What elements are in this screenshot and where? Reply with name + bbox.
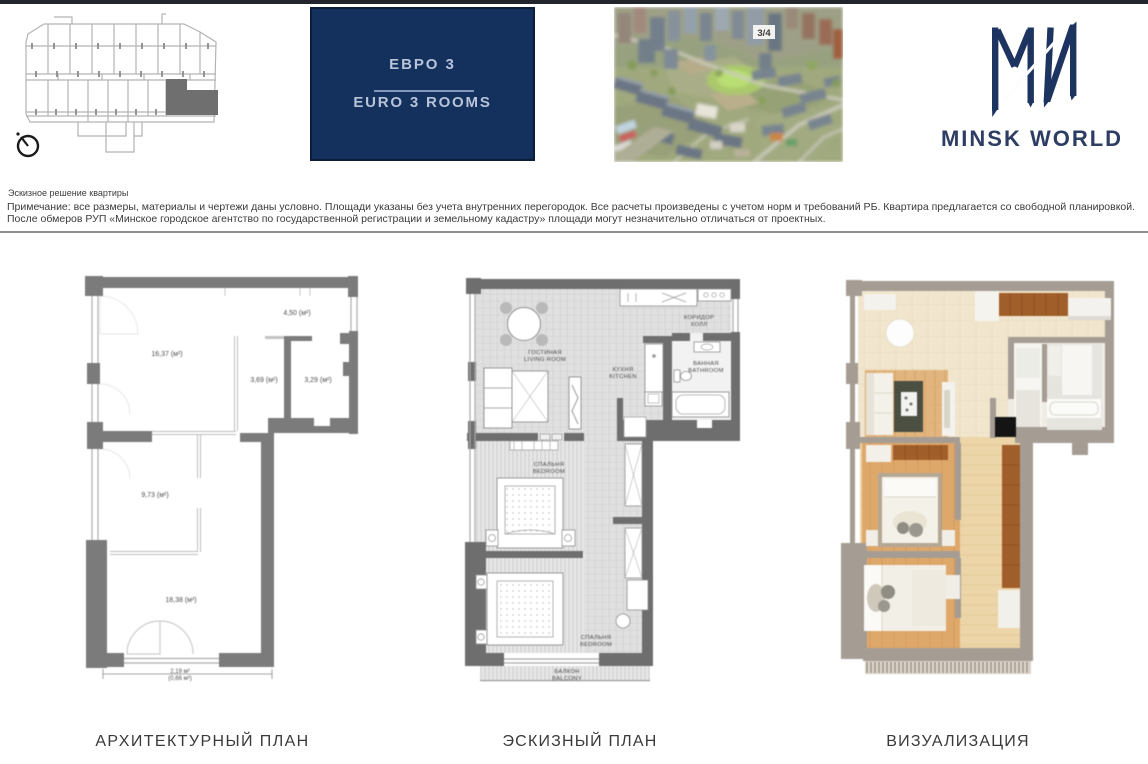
svg-text:КОРИДОР: КОРИДОР bbox=[684, 315, 714, 321]
svg-text:BEDROOM: BEDROOM bbox=[580, 642, 612, 648]
svg-text:BEDROOM: BEDROOM bbox=[533, 469, 565, 475]
svg-text:ХОЛЛ: ХОЛЛ bbox=[691, 322, 708, 328]
svg-text:LIVING ROOM: LIVING ROOM bbox=[524, 357, 566, 363]
svg-text:СПАЛЬНЯ: СПАЛЬНЯ bbox=[581, 635, 611, 641]
svg-text:КУХНЯ: КУХНЯ bbox=[613, 367, 634, 373]
svg-text:18,38 (м²): 18,38 (м²) bbox=[165, 597, 196, 604]
svg-text:9,73 (м²): 9,73 (м²) bbox=[141, 492, 168, 499]
svg-text:ГОСТИНАЯ: ГОСТИНАЯ bbox=[528, 350, 562, 356]
svg-text:СПАЛЬНЯ: СПАЛЬНЯ bbox=[534, 462, 564, 468]
svg-text:MINSK WORLD: MINSK WORLD bbox=[941, 126, 1123, 151]
svg-text:(0,66 м²): (0,66 м²) bbox=[168, 676, 191, 682]
svg-text:2,19 м²: 2,19 м² bbox=[170, 669, 189, 675]
svg-text:3,69 (м²): 3,69 (м²) bbox=[250, 377, 277, 384]
svg-text:BATHROOM: BATHROOM bbox=[688, 368, 723, 374]
svg-text:KITCHEN: KITCHEN bbox=[609, 374, 637, 380]
svg-text:3,29 (м²): 3,29 (м²) bbox=[304, 377, 331, 384]
svg-text:4,50 (м²): 4,50 (м²) bbox=[283, 310, 310, 317]
svg-text:ВАННАЯ: ВАННАЯ bbox=[693, 361, 719, 367]
svg-text:3/4: 3/4 bbox=[757, 28, 771, 39]
svg-text:BALCONY: BALCONY bbox=[552, 676, 582, 682]
svg-text:БАЛКОН: БАЛКОН bbox=[554, 669, 579, 675]
svg-text:16,37 (м²): 16,37 (м²) bbox=[151, 351, 182, 358]
